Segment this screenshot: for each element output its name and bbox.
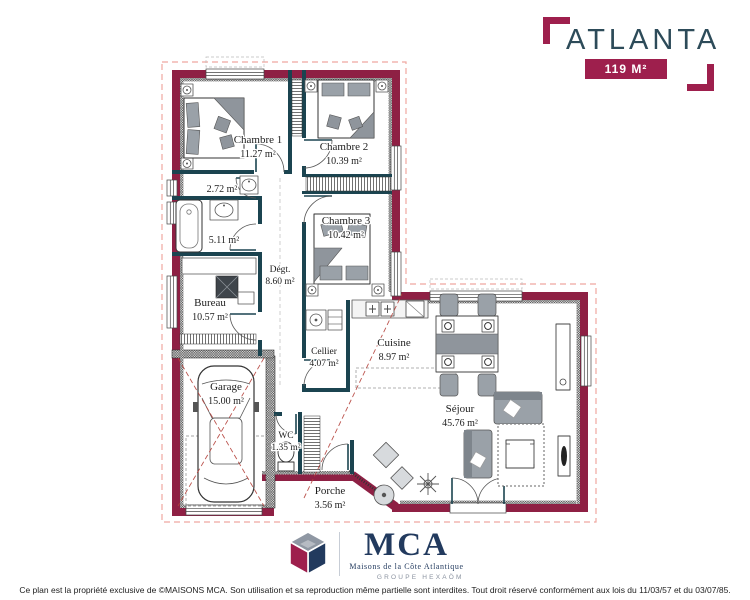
svg-text:45.76 m²: 45.76 m² (442, 418, 478, 429)
copyright-notice: Ce plan est la propriété exclusive de ©M… (0, 585, 750, 595)
dining-set (436, 294, 498, 396)
vanity-salle-eau (240, 176, 258, 194)
floor-plan-page: ATLANTA 119 M² (0, 0, 750, 600)
svg-text:15.00 m²: 15.00 m² (208, 396, 244, 407)
svg-text:Garage: Garage (210, 381, 242, 393)
logo-acronym: MCA (364, 530, 449, 560)
logo-group-name: GROUPE HEXAÖM (377, 574, 464, 581)
svg-text:8.60 m²: 8.60 m² (265, 277, 294, 287)
svg-text:5.11 m²: 5.11 m² (209, 235, 239, 246)
svg-text:Dégt.: Dégt. (270, 265, 291, 275)
svg-text:Chambre 3: Chambre 3 (322, 215, 371, 227)
svg-text:1.35 m²: 1.35 m² (271, 443, 300, 453)
svg-text:Chambre 2: Chambre 2 (320, 141, 369, 153)
room-label-cuisine: Cuisine 8.97 m² (377, 337, 411, 363)
svg-text:10.57 m²: 10.57 m² (192, 312, 228, 323)
room-label-sejour: Séjour 45.76 m² (442, 403, 478, 429)
corner-bracket-bottom-right-icon (687, 64, 714, 91)
svg-text:WC: WC (278, 431, 293, 441)
svg-text:11.27 m²: 11.27 m² (240, 149, 275, 160)
room-label-cellier: Cellier 4.07 m² (309, 347, 338, 369)
bed-chambre-1 (181, 84, 244, 169)
svg-text:4.07 m²: 4.07 m² (309, 359, 338, 369)
logo-company-name: Maisons de la Côte Atlantique (349, 562, 463, 571)
svg-text:2.72 m²: 2.72 m² (207, 184, 238, 195)
room-label-chambre-2: Chambre 2 10.39 m² (320, 141, 369, 167)
svg-text:Cuisine: Cuisine (377, 337, 411, 349)
bed-chambre-2 (305, 80, 388, 138)
svg-text:Chambre 1: Chambre 1 (234, 134, 283, 146)
floor-plan-drawing: Chambre 1 11.27 m² Chambre 2 10.39 m² Ch… (150, 50, 610, 530)
svg-text:Bureau: Bureau (194, 297, 226, 309)
room-label-porche: Porche 3.56 m² (315, 485, 346, 511)
svg-text:Cellier: Cellier (311, 347, 338, 357)
room-label-salle-eau: 2.72 m² (207, 184, 238, 195)
plant-icon (417, 473, 439, 495)
svg-text:10.39 m²: 10.39 m² (326, 156, 362, 167)
room-label-salle-bains: 5.11 m² (209, 235, 239, 246)
svg-text:Séjour: Séjour (446, 403, 475, 415)
svg-text:8.97 m²: 8.97 m² (379, 352, 410, 363)
svg-text:3.56 m²: 3.56 m² (315, 500, 346, 511)
appliances-cellier (306, 310, 342, 330)
mca-logo: MCA Maisons de la Côte Atlantique GROUPE… (0, 530, 750, 581)
room-label-bureau: Bureau 10.57 m² (192, 297, 228, 323)
svg-text:Porche: Porche (315, 485, 346, 497)
svg-text:10.42 m²: 10.42 m² (328, 230, 364, 241)
logo-divider (339, 532, 340, 576)
mca-cube-icon (286, 530, 330, 578)
